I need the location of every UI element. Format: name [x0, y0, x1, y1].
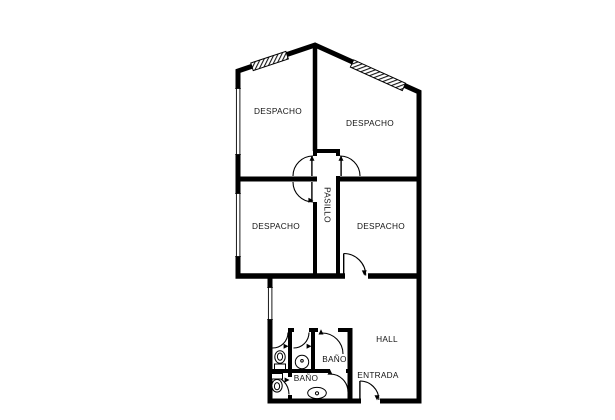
- door-bano-lower: [328, 369, 349, 392]
- door-despacho-mid-left: [293, 182, 313, 203]
- toilet-icon-upper: [275, 351, 286, 370]
- sink-icon-oval: [308, 387, 327, 398]
- window-hall-left: [267, 287, 273, 320]
- door-despacho-top-left: [293, 156, 315, 176]
- sloped-window-right: [350, 60, 405, 91]
- door-wc1: [273, 333, 289, 349]
- door-entrada: [360, 381, 380, 400]
- room-label-despacho-mid-right: DESPACHO: [357, 221, 405, 231]
- sloped-window-left: [251, 51, 289, 70]
- floor-plan-page: DESPACHO DESPACHO DESPACHO DESPACHO PASI…: [0, 0, 615, 420]
- room-label-pasillo: PASILLO: [323, 187, 333, 223]
- room-label-bano-lower: BAÑO: [294, 373, 319, 383]
- door-wc2-upper: [294, 333, 312, 349]
- toilet-icon-lower: [272, 374, 283, 393]
- room-label-hall: HALL: [376, 334, 398, 344]
- door-despacho-mid-right-to-hall: [344, 254, 367, 276]
- room-label-despacho-mid-left: DESPACHO: [252, 221, 300, 231]
- room-label-entrada: ENTRADA: [357, 370, 399, 380]
- room-label-despacho-top-left: DESPACHO: [254, 106, 302, 116]
- door-bano-upper: [319, 329, 344, 354]
- door-despacho-top-right: [339, 156, 361, 176]
- window-upper-left: [235, 88, 241, 155]
- room-label-despacho-top-right: DESPACHO: [346, 118, 394, 128]
- floor-plan-svg: DESPACHO DESPACHO DESPACHO DESPACHO PASI…: [0, 0, 615, 420]
- sink-icon-round: [295, 355, 308, 368]
- window-mid-left: [235, 193, 241, 257]
- room-label-bano-upper: BAÑO: [322, 354, 347, 364]
